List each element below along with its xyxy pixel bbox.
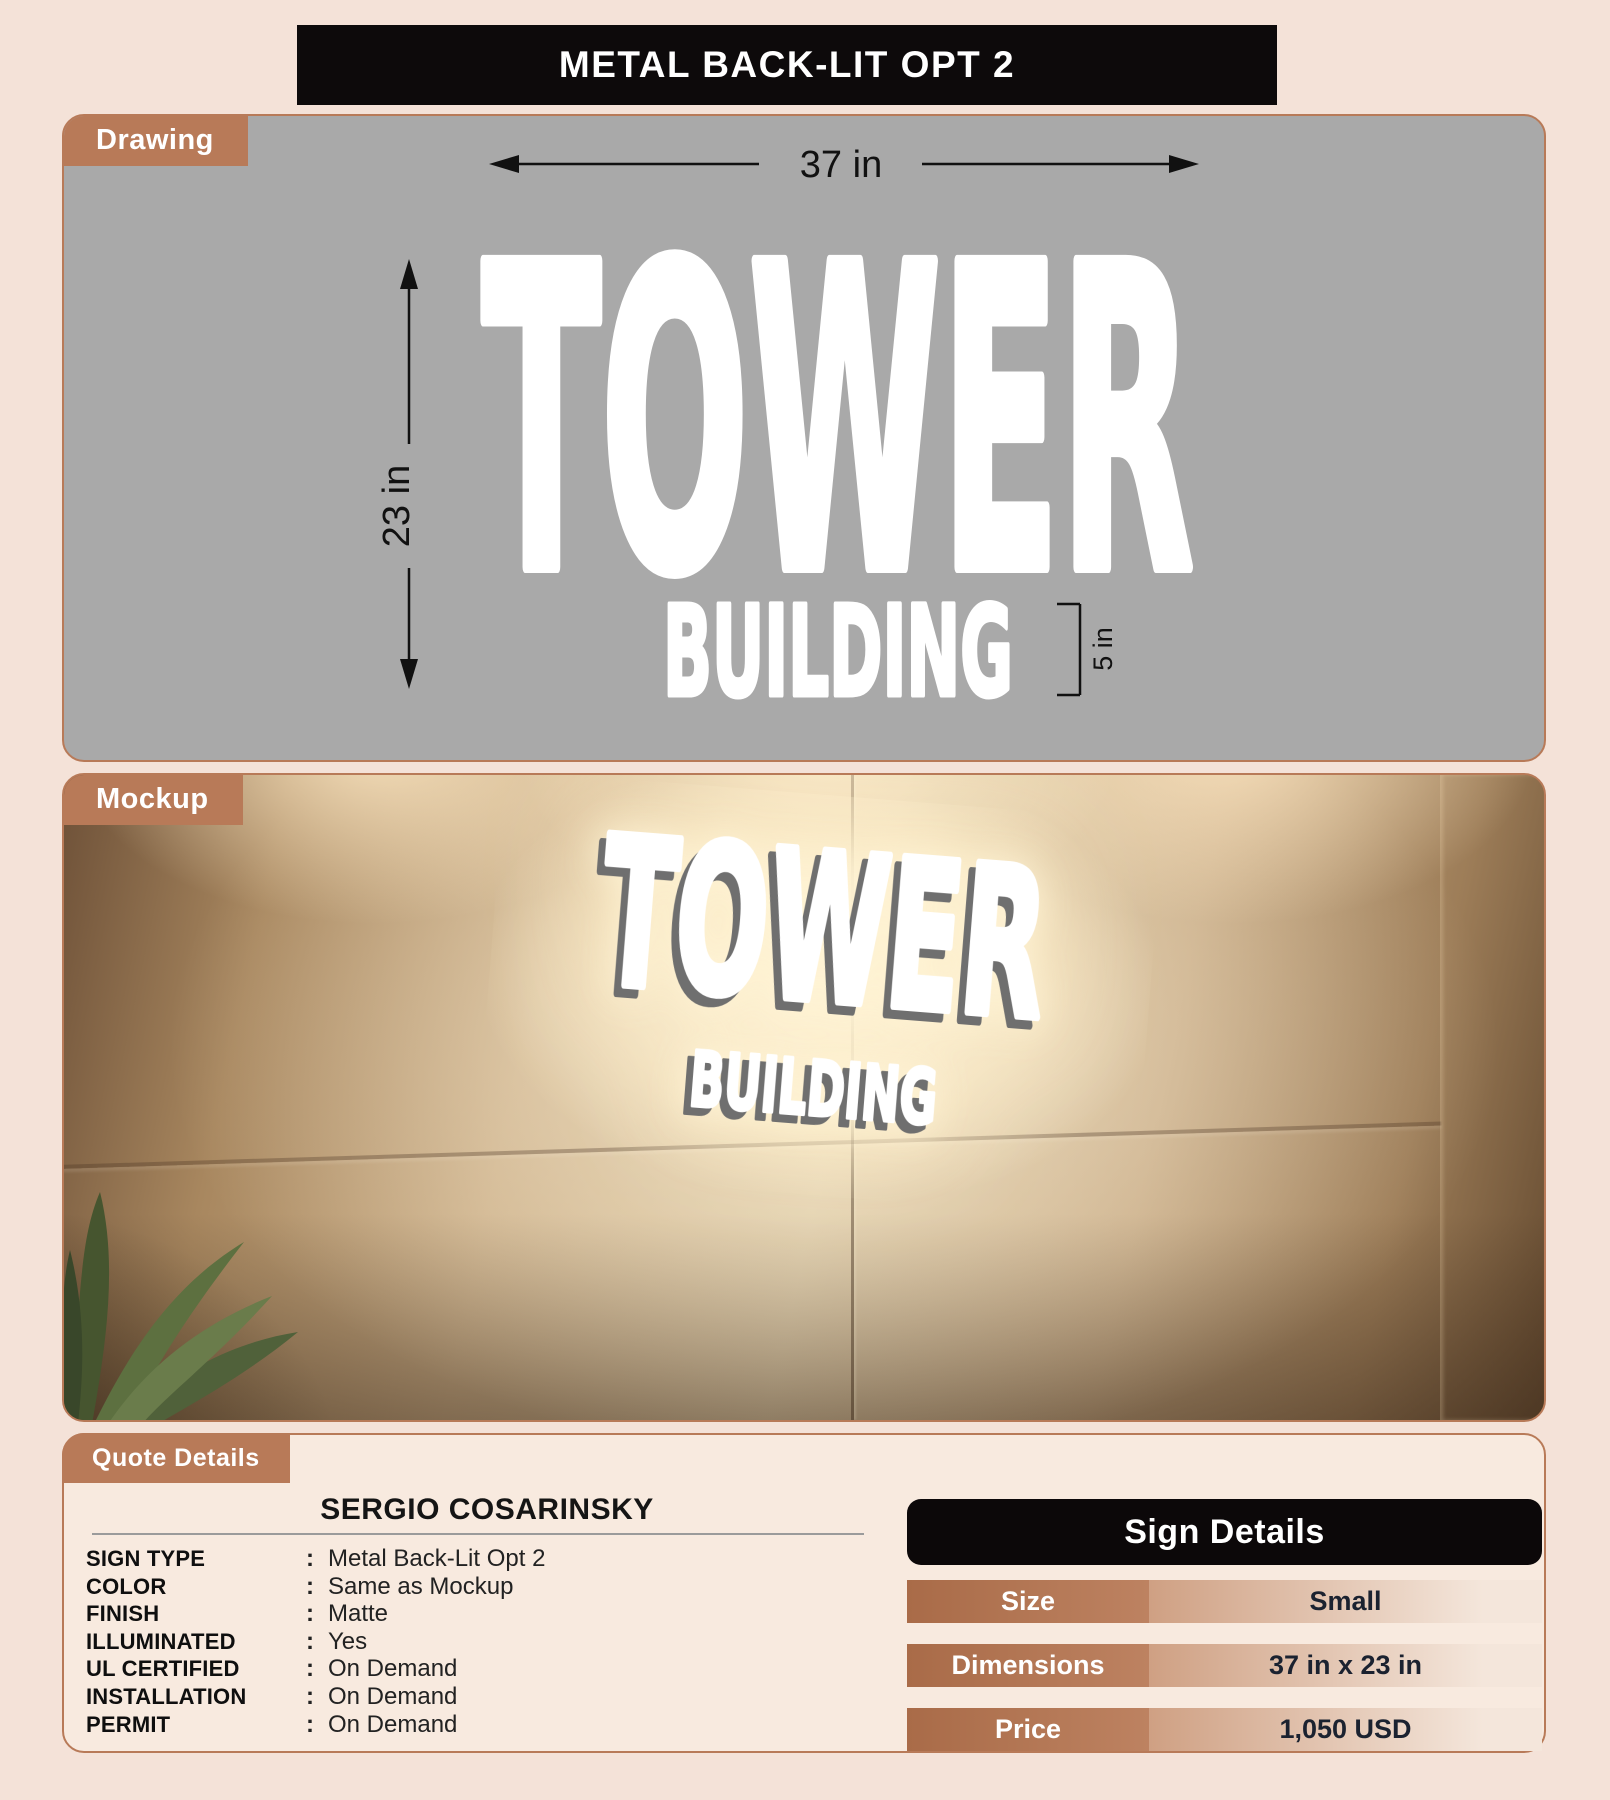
- drawing-panel: Drawing TOWER BUILDING 37 in 23 in 5 in: [62, 114, 1546, 762]
- drawing-tab: Drawing: [62, 114, 248, 166]
- field-value: Metal Back-Lit Opt 2: [328, 1545, 545, 1573]
- quote-sheet-page: METAL BACK-LIT OPT 2 Drawing TOWER BUILD…: [0, 0, 1610, 1800]
- quote-row-ul-certified: UL CERTIFIED : On Demand: [86, 1655, 906, 1683]
- detail-value: 1,050 USD: [1149, 1708, 1542, 1751]
- quote-row-sign-type: SIGN TYPE : Metal Back-Lit Opt 2: [86, 1545, 906, 1573]
- field-label: INSTALLATION: [86, 1684, 306, 1710]
- sign-details-row-price: Price 1,050 USD: [907, 1708, 1542, 1751]
- drawing-tab-label: Drawing: [96, 124, 214, 157]
- height-dim-arrow-top: [400, 259, 418, 289]
- quote-details-tab-label: Quote Details: [92, 1444, 260, 1473]
- mockup-tab-label: Mockup: [96, 783, 209, 816]
- quote-row-installation: INSTALLATION : On Demand: [86, 1683, 906, 1711]
- height-dim-label: 23 in: [376, 465, 418, 547]
- mockup-sign: TOWER BUILDING TOWER BUILDING: [547, 805, 1092, 1180]
- page-title: METAL BACK-LIT OPT 2: [559, 44, 1015, 86]
- quote-row-color: COLOR : Same as Mockup: [86, 1573, 906, 1601]
- field-label: UL CERTIFIED: [86, 1656, 306, 1682]
- quote-details-tab: Quote Details: [62, 1433, 290, 1483]
- quote-details-panel: Quote Details SERGIO COSARINSKY SIGN TYP…: [62, 1433, 1546, 1753]
- field-value: On Demand: [328, 1683, 457, 1711]
- field-label: SIGN TYPE: [86, 1546, 306, 1572]
- field-separator: :: [306, 1545, 328, 1573]
- title-bar: METAL BACK-LIT OPT 2: [297, 25, 1277, 105]
- detail-value: 37 in x 23 in: [1149, 1644, 1542, 1687]
- name-divider: [92, 1533, 864, 1535]
- mockup-sign-line1: TOWER: [593, 805, 1055, 1066]
- field-value: On Demand: [328, 1711, 457, 1739]
- line2-dim-label: 5 in: [1088, 627, 1118, 671]
- field-separator: :: [306, 1683, 328, 1711]
- field-separator: :: [306, 1711, 328, 1739]
- detail-value: Small: [1149, 1580, 1542, 1623]
- mockup-tab: Mockup: [62, 773, 243, 825]
- mockup-sign-graphic: TOWER BUILDING TOWER BUILDING: [547, 805, 1092, 1180]
- mockup-panel: TOWER BUILDING TOWER BUILDING Mockup: [62, 773, 1546, 1422]
- field-value: Matte: [328, 1600, 388, 1628]
- drawing-sign-line2: BUILDING: [663, 580, 1013, 725]
- plant-graphic: [62, 1094, 326, 1422]
- field-separator: :: [306, 1600, 328, 1628]
- customer-name: SERGIO COSARINSKY: [84, 1493, 890, 1527]
- quote-field-list: SIGN TYPE : Metal Back-Lit Opt 2 COLOR :…: [86, 1545, 906, 1738]
- field-separator: :: [306, 1573, 328, 1601]
- sign-details-row-size: Size Small: [907, 1580, 1542, 1623]
- quote-row-finish: FINISH : Matte: [86, 1600, 906, 1628]
- sign-drawing-graphic: TOWER BUILDING 37 in 23 in 5 in: [64, 116, 1544, 760]
- height-dim-arrow-bottom: [400, 659, 418, 689]
- field-value: Same as Mockup: [328, 1573, 513, 1601]
- field-value: Yes: [328, 1628, 367, 1656]
- detail-label: Size: [907, 1580, 1149, 1623]
- width-dim-arrow-left: [489, 155, 519, 173]
- field-label: ILLUMINATED: [86, 1629, 306, 1655]
- field-label: FINISH: [86, 1601, 306, 1627]
- width-dim-label: 37 in: [800, 144, 882, 186]
- field-label: PERMIT: [86, 1712, 306, 1738]
- width-dim-arrow-right: [1169, 155, 1199, 173]
- detail-label: Dimensions: [907, 1644, 1149, 1687]
- sign-details-title: Sign Details: [1124, 1513, 1325, 1552]
- field-separator: :: [306, 1628, 328, 1656]
- quote-row-permit: PERMIT : On Demand: [86, 1711, 906, 1739]
- quote-row-illuminated: ILLUMINATED : Yes: [86, 1628, 906, 1656]
- field-value: On Demand: [328, 1655, 457, 1683]
- sign-details-row-dimensions: Dimensions 37 in x 23 in: [907, 1644, 1542, 1687]
- sign-details-header: Sign Details: [907, 1499, 1542, 1565]
- field-label: COLOR: [86, 1574, 306, 1600]
- detail-label: Price: [907, 1708, 1149, 1751]
- field-separator: :: [306, 1655, 328, 1683]
